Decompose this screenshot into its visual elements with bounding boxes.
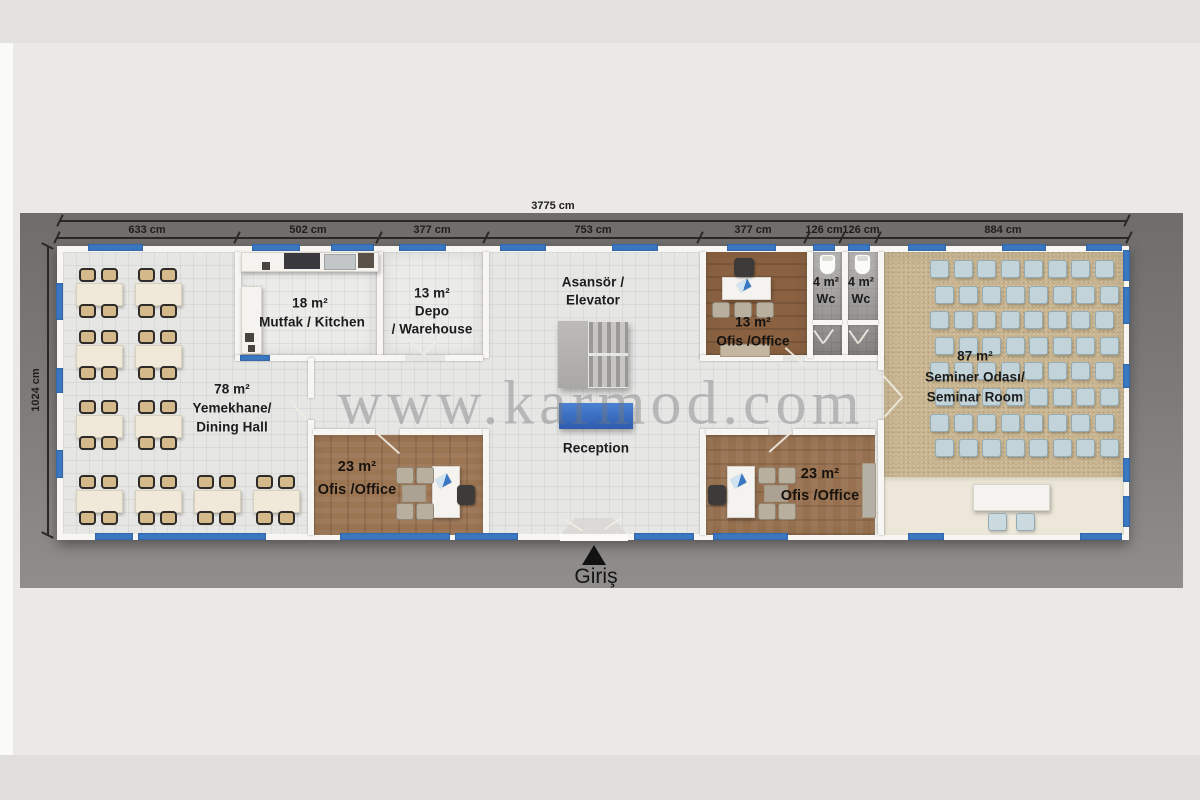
dimension-segment-label: 633 cm <box>128 224 165 236</box>
kitchen-area-label: 18 m² <box>292 296 328 311</box>
dimension-height-label: 1024 cm <box>30 368 42 411</box>
office23L-chair <box>457 485 475 505</box>
dimension-total-label: 3775 cm <box>531 200 574 212</box>
kitchen-appliance <box>262 262 270 270</box>
toilet <box>819 254 836 275</box>
wall <box>848 320 878 325</box>
door-opening <box>405 355 445 361</box>
wc-right-name: Wc <box>852 292 871 306</box>
guest-chair <box>758 503 776 520</box>
guest-chair <box>758 467 776 484</box>
podium-chair <box>988 513 1007 531</box>
watermark: www.karmod.com <box>337 369 864 440</box>
dining-name-tr: Yemekhane/ <box>192 401 271 416</box>
guest-chair <box>712 302 730 318</box>
warehouse-name-line2: / Warehouse <box>392 322 473 337</box>
kitchen-name: Mutfak / Kitchen <box>259 315 365 330</box>
seminar-name-en: Seminar Room <box>927 390 1023 405</box>
dining-name-en: Dining Hall <box>196 420 268 435</box>
dining-area-label: 78 m² <box>214 382 250 397</box>
seminar-name-tr: Seminer Odası/ <box>925 370 1025 385</box>
office23R-chair <box>708 485 726 505</box>
kitchen-appliance <box>248 345 255 352</box>
dimension-line-total <box>60 220 1127 222</box>
wall <box>308 358 314 398</box>
cooktop <box>284 253 320 269</box>
warehouse-area-label: 13 m² <box>414 286 450 301</box>
backdrop-left-strip <box>0 43 13 755</box>
guest-chair <box>396 467 414 484</box>
elevator-label-line2: Elevator <box>566 293 620 308</box>
guest-chair <box>778 467 796 484</box>
office23L-name: Ofis /Office <box>318 482 397 498</box>
backdrop-top-band <box>0 0 1200 43</box>
dimension-line-segments <box>57 237 1129 239</box>
wall <box>878 252 884 370</box>
wall <box>483 429 489 535</box>
entrance-opening <box>560 533 628 541</box>
wall <box>308 420 314 535</box>
seminar-podium-table <box>973 484 1050 511</box>
entrance-label: Giriş <box>574 565 617 589</box>
dimension-segment-label: 377 cm <box>413 224 450 236</box>
stairs-upper-flight <box>589 322 628 353</box>
dimension-segment-label: 377 cm <box>734 224 771 236</box>
wc-right-area-label: 4 m² <box>848 275 874 289</box>
office23R-cabinet <box>862 463 876 518</box>
wc-left-name: Wc <box>817 292 836 306</box>
wall <box>483 252 489 358</box>
wall <box>807 252 813 358</box>
podium-chair <box>1016 513 1035 531</box>
office13-area-label: 13 m² <box>735 315 771 330</box>
guest-chair <box>778 503 796 520</box>
guest-chair <box>416 503 434 520</box>
office23L-area-label: 23 m² <box>338 459 376 475</box>
dimension-segment-label: 884 cm <box>984 224 1021 236</box>
guest-chair <box>416 467 434 484</box>
office23R-name: Ofis /Office <box>781 488 860 504</box>
wall <box>842 252 848 358</box>
dimension-segment-label: 502 cm <box>289 224 326 236</box>
floor-plan-render: 3775 cm 633 cm 502 cm 377 cm 753 cm 377 … <box>0 0 1200 800</box>
kitchen-sink <box>324 254 356 270</box>
toilet <box>854 254 871 275</box>
dimension-line-height <box>47 246 49 535</box>
kitchen-appliance <box>245 333 254 342</box>
coffee-table <box>402 485 426 502</box>
wall <box>700 252 706 358</box>
wall <box>878 420 884 535</box>
elevator-label-line1: Asansör / <box>562 275 624 290</box>
office13-chair <box>734 258 754 277</box>
backdrop-bottom-band <box>0 755 1200 800</box>
office13-name: Ofis /Office <box>716 334 789 349</box>
warehouse-name-line1: Depo <box>415 304 449 319</box>
office23R-area-label: 23 m² <box>801 466 839 482</box>
door-opening <box>783 355 805 361</box>
dimension-segment-label: 126 cm <box>842 224 879 236</box>
dimension-segment-label: 753 cm <box>574 224 611 236</box>
wall <box>813 320 842 325</box>
reception-label: Reception <box>563 441 629 456</box>
entrance-arrow-icon <box>582 545 606 565</box>
wc-left-area-label: 4 m² <box>813 275 839 289</box>
guest-chair <box>396 503 414 520</box>
kitchen-appliance <box>358 253 374 268</box>
dimension-segment-label: 126 cm <box>805 224 842 236</box>
wall <box>235 355 483 361</box>
seminar-area-label: 87 m² <box>957 349 993 364</box>
wall <box>700 429 706 535</box>
